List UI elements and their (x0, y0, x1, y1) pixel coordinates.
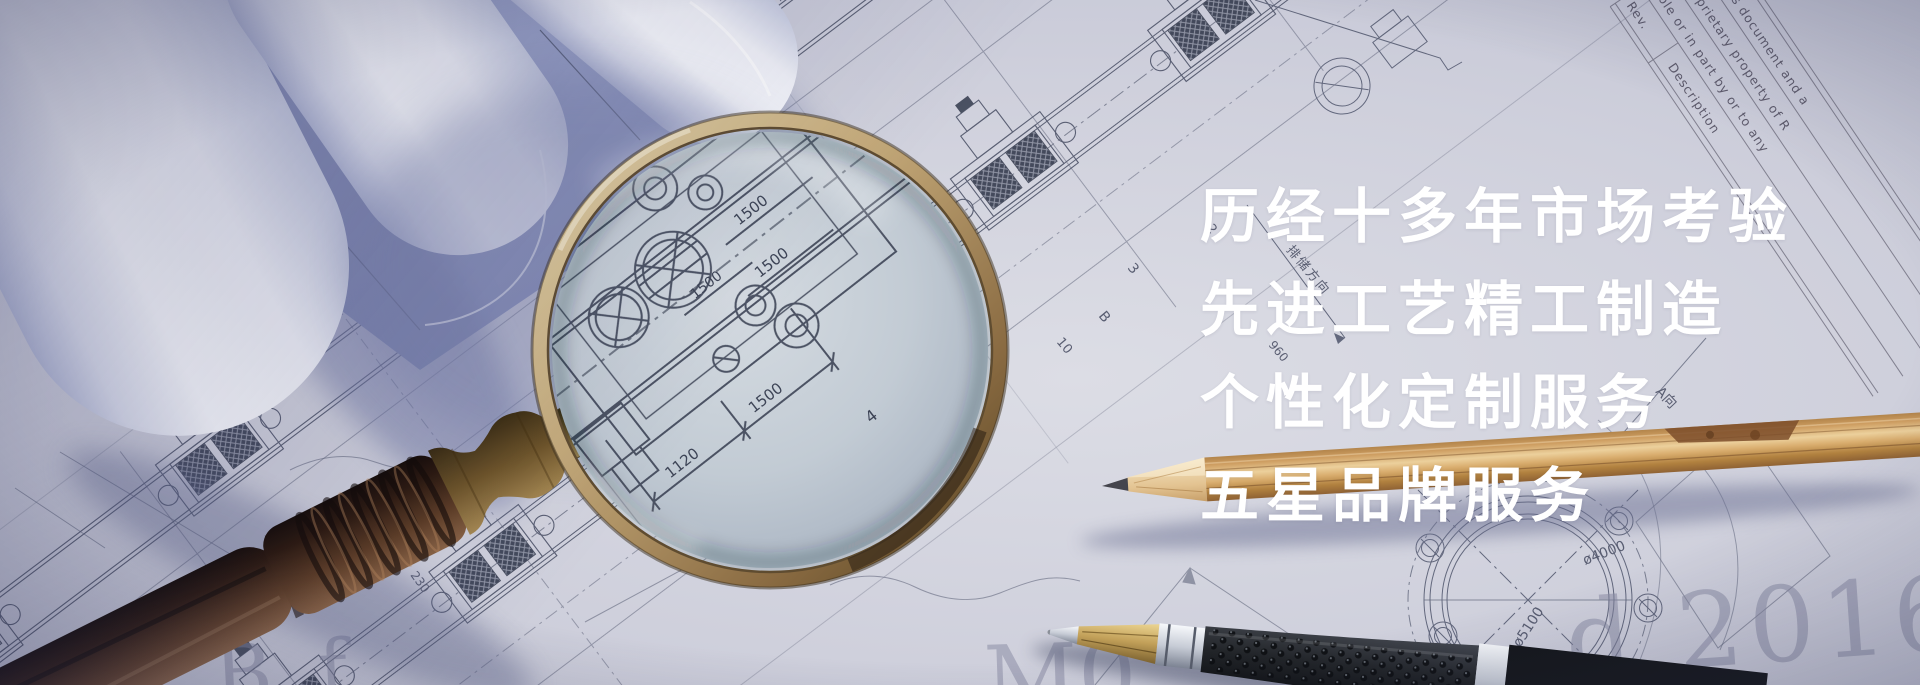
hero-banner: This document and a proprietary property… (0, 0, 1920, 685)
hero-line-1: 历经十多年市场考验 (1200, 171, 1794, 264)
hero-text: 历经十多年市场考验 先进工艺精工制造 个性化定制服务 五星品牌服务 (1200, 171, 1794, 543)
hero-line-3: 个性化定制服务 (1200, 357, 1794, 450)
hero-line-2: 先进工艺精工制造 (1200, 264, 1794, 357)
hero-line-4: 五星品牌服务 (1200, 450, 1794, 543)
